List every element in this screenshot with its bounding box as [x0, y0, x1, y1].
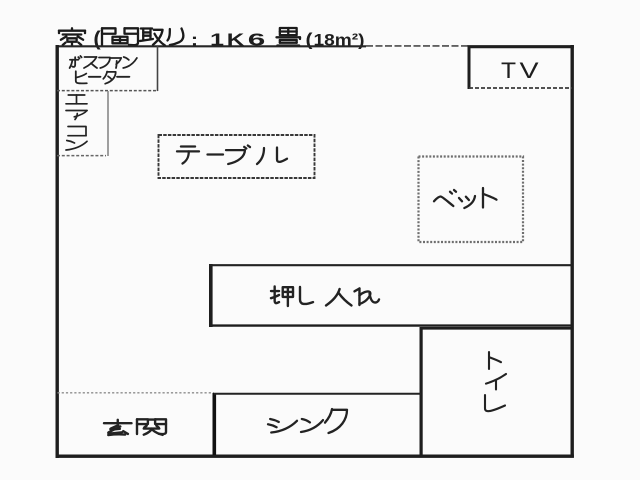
svg-text:V: V [520, 59, 539, 83]
svg-text:T: T [501, 58, 516, 82]
